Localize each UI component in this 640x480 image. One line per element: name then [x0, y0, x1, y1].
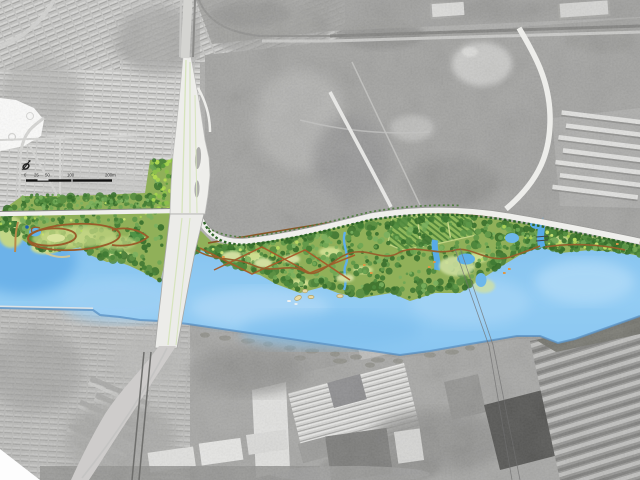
svg-text:50: 50 [45, 173, 50, 178]
svg-text:100: 100 [67, 173, 75, 178]
svg-text:200m: 200m [105, 173, 116, 178]
svg-text:25: 25 [34, 173, 39, 178]
